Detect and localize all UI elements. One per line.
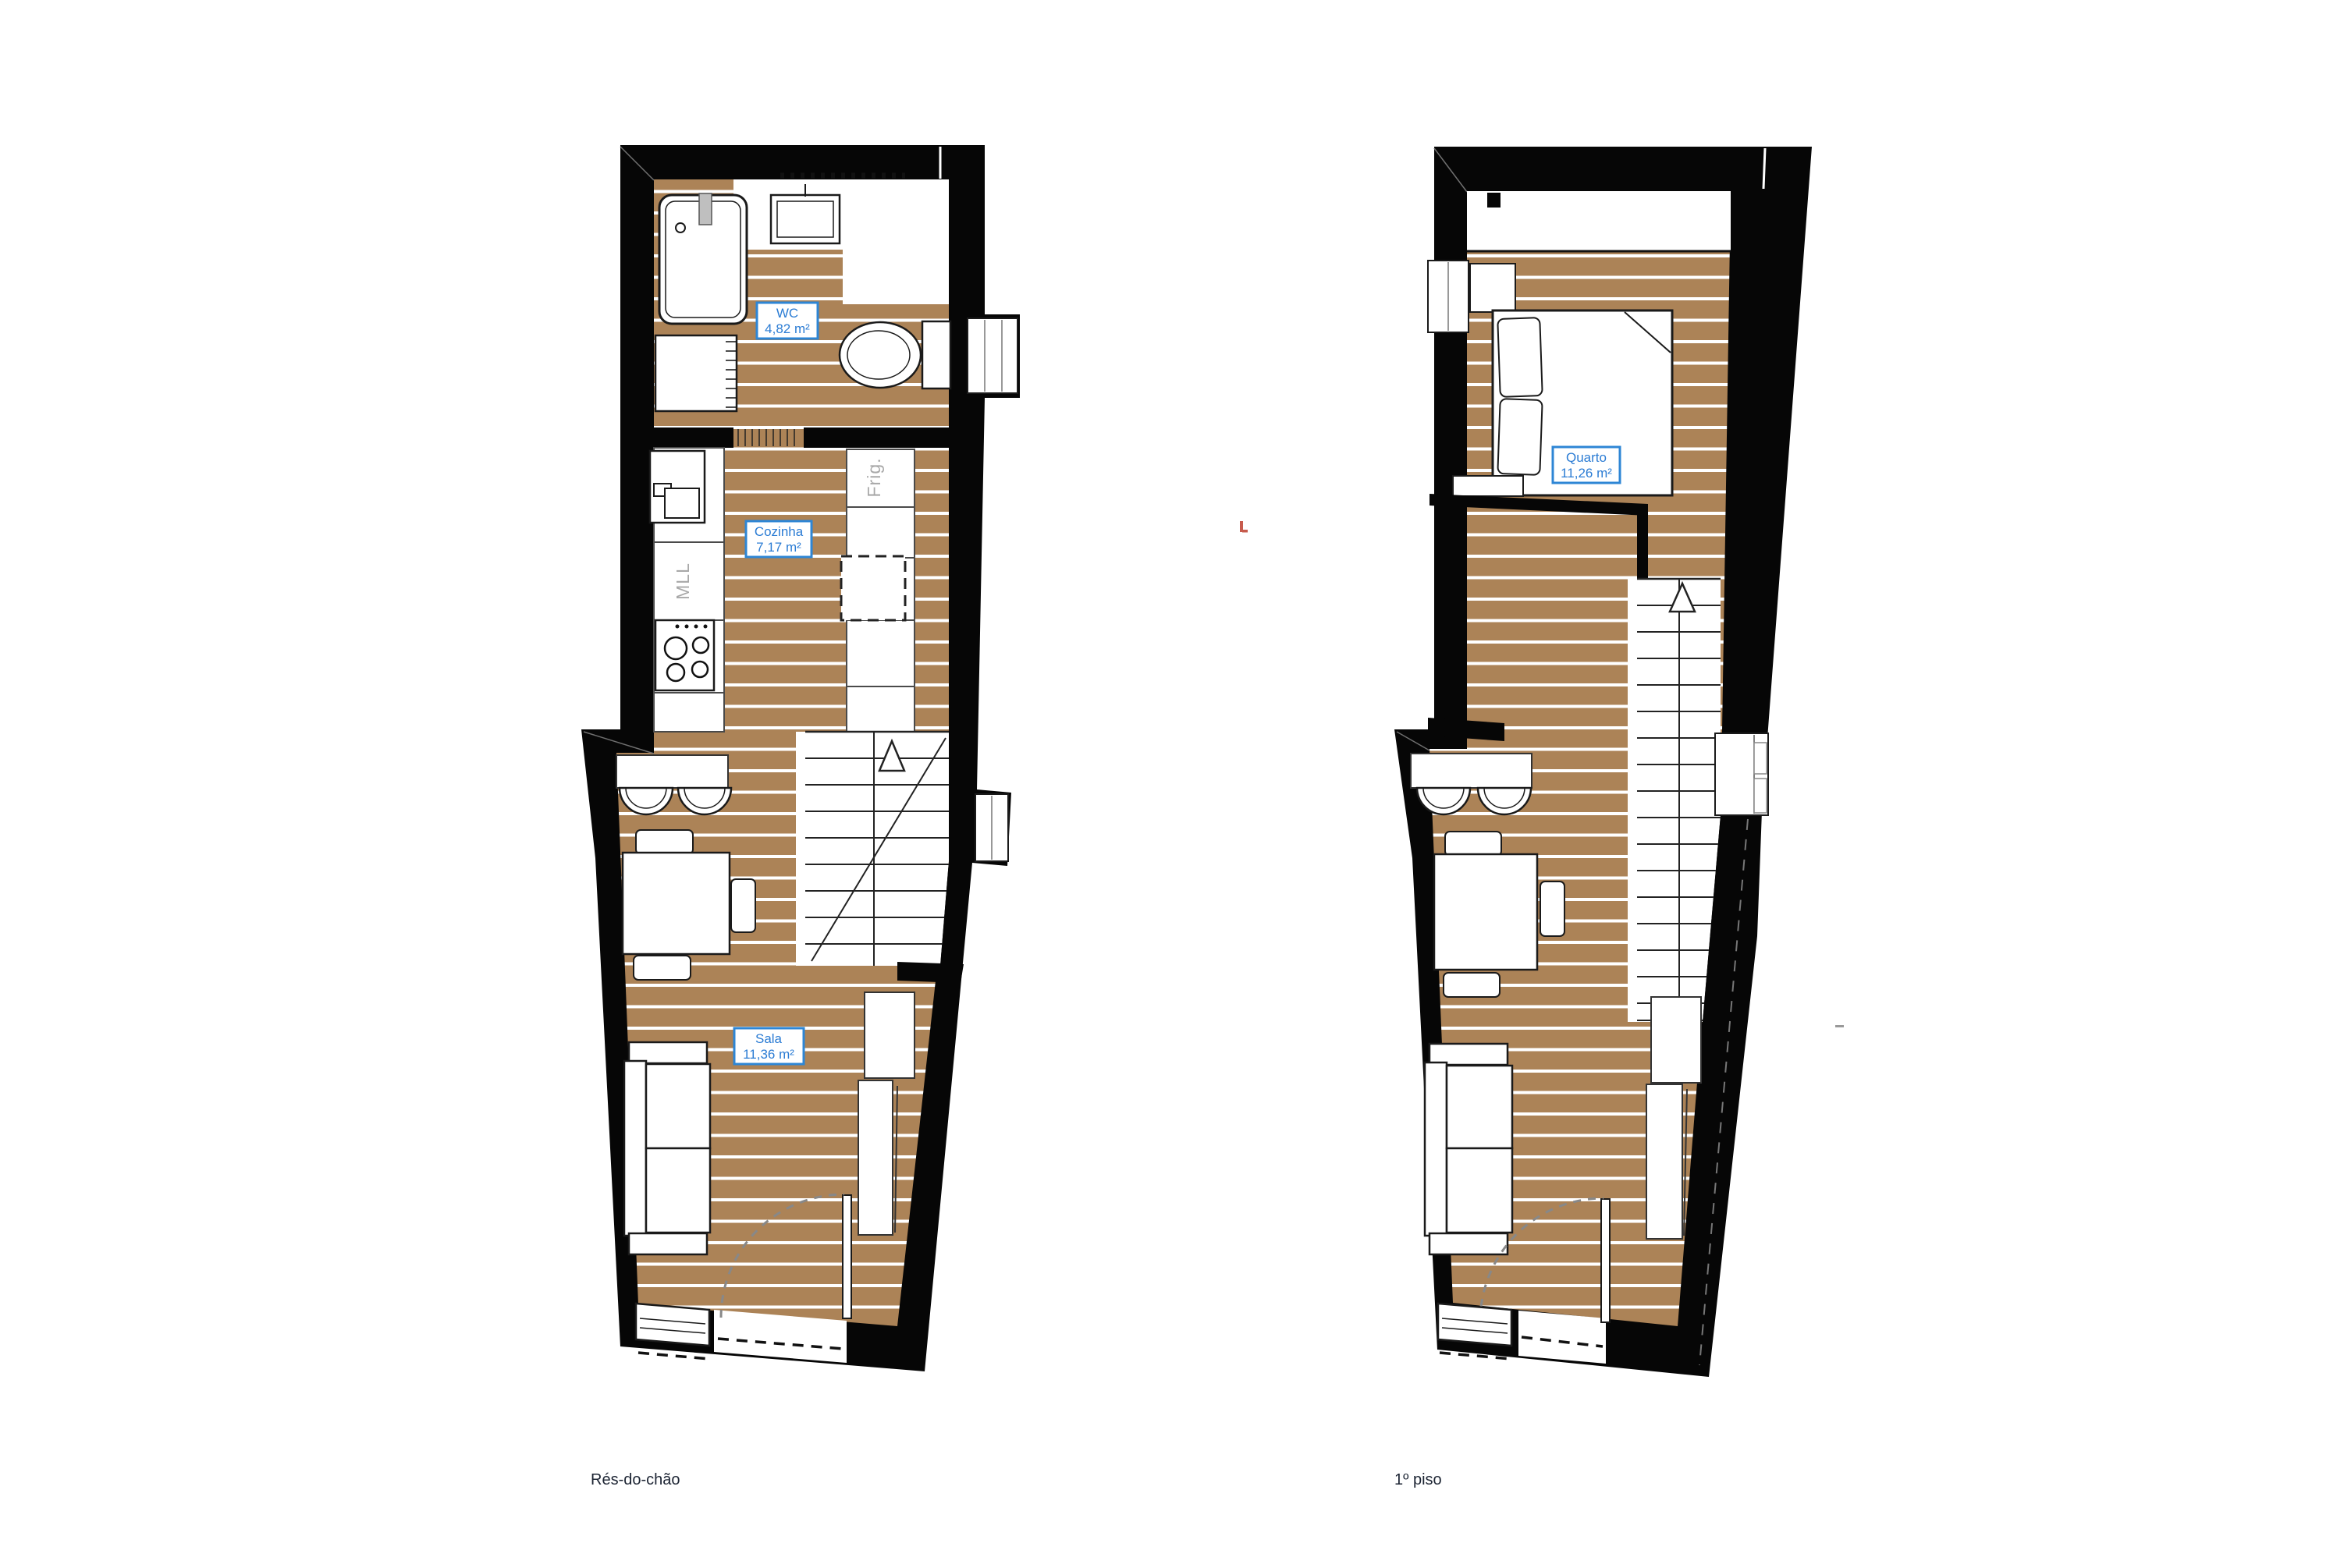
floorplan-page: MLL Frig. <box>0 0 2344 1568</box>
plan-title-ground: Rés-do-chão <box>591 1471 680 1488</box>
fridge-label: Frig. <box>864 458 884 498</box>
bathtub-drain <box>676 223 685 232</box>
room-label-sala: Sala 11,36 m² <box>734 1028 804 1064</box>
sofa <box>1425 1044 1512 1254</box>
pillow <box>1497 318 1542 397</box>
svg-text:Quarto: Quarto <box>1566 450 1607 465</box>
svg-text:4,82 m²: 4,82 m² <box>765 321 810 336</box>
dining-chair <box>1444 973 1500 997</box>
svg-text:Cozinha: Cozinha <box>755 524 804 539</box>
sofa <box>624 1042 710 1254</box>
stray-mark-gray <box>1835 1025 1844 1027</box>
dining-chair <box>1540 882 1564 936</box>
bathtub-faucet <box>699 193 712 225</box>
stairs <box>796 732 964 983</box>
room-label-cozinha: Cozinha 7,17 m² <box>746 521 812 557</box>
dishwasher-label: MLL <box>673 562 693 600</box>
dining-chair <box>731 879 755 932</box>
wc-tile-floor <box>843 248 949 304</box>
first-floor-plan: Quarto 11,26 m² <box>1394 147 1812 1377</box>
dining-table <box>1434 854 1537 970</box>
floorplan-drawing: MLL Frig. <box>0 0 2344 1568</box>
bathtub <box>659 193 747 324</box>
stray-mark-red <box>1240 521 1248 533</box>
svg-text:11,26 m²: 11,26 m² <box>1561 466 1612 481</box>
nightstand <box>1470 264 1515 312</box>
dining-chair <box>634 956 691 980</box>
wc-tile-floor <box>733 179 949 250</box>
room-label-quarto: Quarto 11,26 m² <box>1553 447 1620 483</box>
partition-wall <box>1637 504 1648 579</box>
dining-chair <box>1445 832 1501 856</box>
stair-wall-stub <box>897 962 964 983</box>
door-leaf <box>1601 1199 1610 1322</box>
wall-slit <box>1763 148 1765 189</box>
svg-text:11,36 m²: 11,36 m² <box>743 1047 794 1062</box>
window <box>968 318 1018 393</box>
svg-text:WC: WC <box>776 306 798 321</box>
dashed-appliance-space <box>841 556 905 620</box>
dining-chair <box>636 830 693 854</box>
window <box>975 794 1008 861</box>
wardrobe <box>1467 191 1731 251</box>
window <box>1715 733 1768 815</box>
bench <box>1453 476 1523 496</box>
window <box>1428 261 1469 332</box>
svg-text:Sala: Sala <box>755 1031 783 1046</box>
door-leaf <box>843 1195 851 1318</box>
dining-table <box>623 853 730 954</box>
stove <box>655 620 714 690</box>
pillow <box>1497 399 1542 475</box>
svg-text:7,17 m²: 7,17 m² <box>756 540 801 555</box>
toilet <box>840 321 950 388</box>
plan-title-first: 1º piso <box>1394 1471 1442 1488</box>
stairs <box>1628 579 1721 1022</box>
ground-floor-plan: MLL Frig. <box>581 145 1020 1371</box>
kitchen-sink <box>650 451 705 523</box>
bathroom-cabinet <box>655 335 737 411</box>
room-label-wc: WC 4,82 m² <box>757 303 818 339</box>
